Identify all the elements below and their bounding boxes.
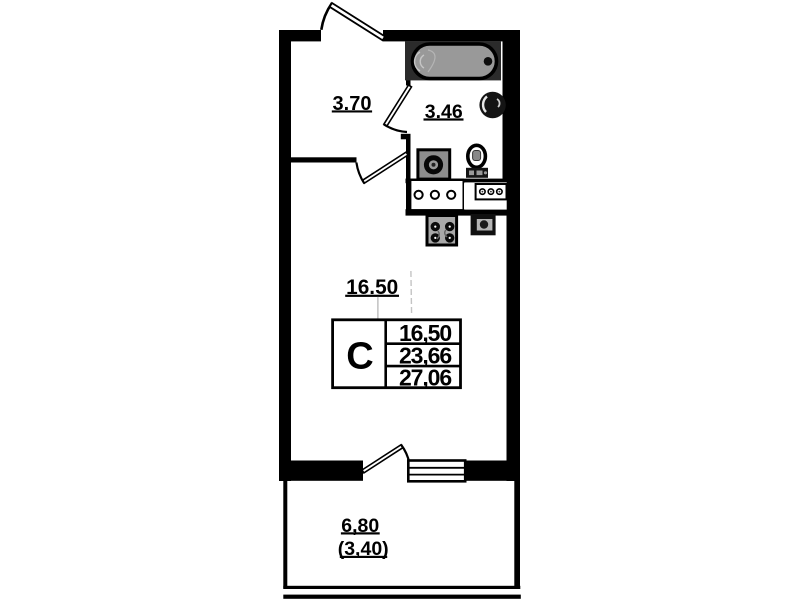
svg-text:С: С — [346, 336, 373, 378]
svg-text:27,06: 27,06 — [399, 365, 451, 391]
